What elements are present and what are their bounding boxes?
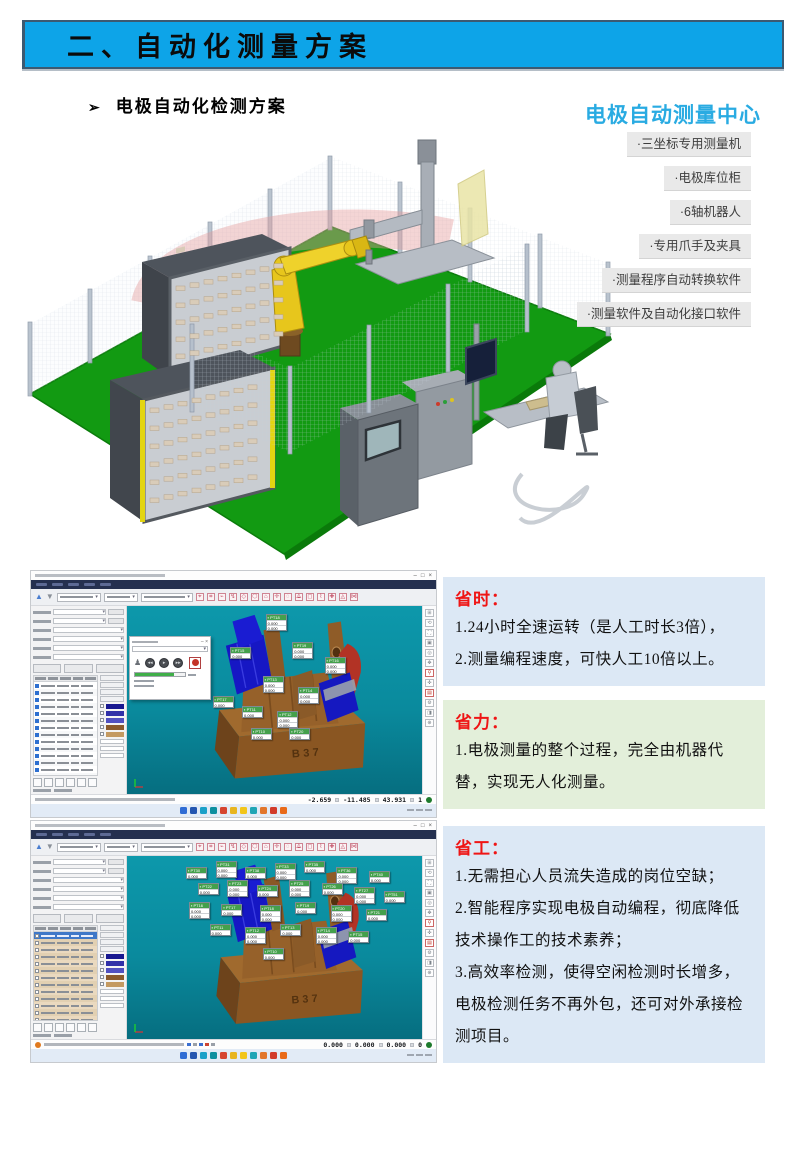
field-button[interactable] (108, 859, 124, 865)
measure-tool-icon[interactable]: ◌ (284, 593, 292, 601)
measurement-tag-value: 0.000 (214, 702, 233, 707)
field-label (33, 870, 51, 873)
table-row[interactable] (34, 939, 97, 946)
layer-checkbox[interactable] (100, 968, 104, 972)
panel-button[interactable] (96, 914, 124, 923)
table-row[interactable] (34, 953, 97, 960)
taskbar-app-icon[interactable] (260, 807, 267, 814)
side-button[interactable] (100, 932, 124, 938)
table-cell (57, 935, 69, 937)
row-marker-icon (35, 726, 39, 730)
spinner-icon[interactable] (375, 798, 379, 802)
measure-tool-icon[interactable]: ◬ (339, 843, 347, 851)
rail-tool-icon[interactable]: ⚲ (425, 919, 434, 927)
table-cell (71, 949, 79, 951)
table-row[interactable] (34, 738, 97, 745)
rail-tool-icon[interactable]: ✜ (425, 929, 434, 937)
spinner-icon[interactable] (347, 1043, 351, 1047)
taskbar-app-icon[interactable] (200, 807, 207, 814)
form-row (33, 608, 124, 616)
layer-checkbox[interactable] (100, 704, 104, 708)
field-dropdown[interactable] (53, 895, 124, 901)
measure-tool-icon[interactable]: ⌇ (317, 593, 325, 601)
spinner-icon[interactable] (379, 1043, 383, 1047)
row-checkbox[interactable] (35, 976, 39, 980)
dialog-dropdown[interactable] (132, 646, 208, 652)
measure-tool-icon[interactable]: ⌂ (262, 843, 270, 851)
menu-item[interactable] (100, 583, 111, 586)
table-row[interactable] (34, 974, 97, 981)
view-icon[interactable]: ▲ (35, 593, 43, 601)
measurement-tag-value: 0.000 (264, 954, 283, 959)
panel-toolbar-icon[interactable] (33, 778, 42, 787)
field-button[interactable] (108, 618, 124, 624)
field-dropdown[interactable] (53, 609, 106, 615)
row-checkbox[interactable] (35, 962, 39, 966)
table-cell (81, 956, 93, 958)
field-dropdown[interactable] (53, 618, 106, 624)
table-row[interactable] (34, 1016, 97, 1021)
menu-item[interactable] (84, 833, 95, 836)
measurement-tag-value: 0.000 (261, 916, 280, 921)
table-cell (57, 727, 69, 729)
measure-tool-icon[interactable]: ✛ (273, 843, 281, 851)
menu-bar (31, 580, 436, 589)
taskbar-app-icon[interactable] (210, 1052, 217, 1059)
measurement-tag-value: 0.000 (228, 891, 247, 896)
taskbar-app-icon[interactable] (240, 807, 247, 814)
side-input[interactable] (100, 746, 124, 751)
status-z: 0.000 (387, 1041, 407, 1049)
panel-button[interactable] (64, 914, 92, 923)
table-cell (71, 706, 79, 708)
measure-tool-icon[interactable]: ↯ (229, 843, 237, 851)
rail-tool-icon[interactable]: ✜ (425, 679, 434, 687)
taskbar-app-icon[interactable] (230, 1052, 237, 1059)
playback-button[interactable]: ▸▸ (173, 658, 183, 668)
panel-button[interactable] (96, 664, 124, 673)
panel-toolbar-icon[interactable] (33, 1023, 42, 1032)
layer-checkbox[interactable] (100, 975, 104, 979)
rail-tool-icon[interactable]: ⚲ (425, 669, 434, 677)
measurement-tag-value: 0.000 (290, 734, 309, 739)
spinner-icon[interactable] (410, 1043, 414, 1047)
field-dropdown[interactable] (53, 654, 124, 660)
status-y: -11.485 (343, 796, 370, 804)
rail-tool-icon[interactable]: ▤ (425, 939, 434, 947)
dialog-close-icon[interactable]: – × (201, 640, 208, 645)
panel-toolbar-icon[interactable] (44, 1023, 53, 1032)
taskbar-app-icon[interactable] (230, 807, 237, 814)
table-cell (41, 713, 55, 715)
measure-tool-icon[interactable]: ⌗ (207, 593, 215, 601)
layer-checkbox[interactable] (100, 711, 104, 715)
panel-toolbar-icon[interactable] (66, 778, 75, 787)
panel-toolbar-icon[interactable] (88, 1023, 97, 1032)
measurement-tag-value: 0.000 (349, 937, 368, 942)
table-row[interactable] (34, 759, 97, 766)
measurement-tag-value: 0.000 (367, 915, 386, 920)
measurement-tag-value: 0.000 (222, 910, 241, 915)
measurement-tag-value: 0.000 (281, 930, 300, 935)
measure-tool-icon[interactable]: ⌇ (317, 843, 325, 851)
menu-item[interactable] (100, 833, 111, 836)
measure-tool-icon[interactable]: ✚ (328, 593, 336, 601)
table-row[interactable] (34, 689, 97, 696)
panel-tab[interactable] (33, 1034, 51, 1037)
measure-tool-icon[interactable]: ⌖ (196, 843, 204, 851)
tray-item (407, 1054, 414, 1056)
toolbar-dropdown[interactable]: ▾ (57, 593, 101, 602)
table-cell (41, 685, 55, 687)
row-checkbox[interactable] (35, 934, 39, 938)
taskbar-app-icon[interactable] (250, 1052, 257, 1059)
row-checkbox[interactable] (35, 997, 39, 1001)
table-cell (71, 762, 79, 764)
row-checkbox[interactable] (35, 969, 39, 973)
measurement-tag: ▪ PT120.0000.000 (245, 927, 266, 944)
measure-tool-icon[interactable]: ⌗ (207, 843, 215, 851)
table-row[interactable] (34, 988, 97, 995)
side-button[interactable] (100, 946, 124, 952)
panel-side-column (100, 925, 124, 1021)
minimize-button[interactable]: – (414, 573, 417, 579)
measurement-tag: ▪ PT260.000 (322, 883, 343, 895)
rail-tool-icon[interactable]: ▣ (425, 639, 434, 647)
field-dropdown[interactable] (53, 636, 124, 642)
view-icon[interactable]: ▲ (35, 843, 43, 851)
measurement-tag: ▪ PT110.000 (242, 706, 263, 718)
rail-tool-icon[interactable]: ⟲ (425, 869, 434, 877)
taskbar-app-icon[interactable] (190, 807, 197, 814)
row-checkbox[interactable] (35, 1011, 39, 1015)
taskbar-app-icon[interactable] (190, 1052, 197, 1059)
measure-tool-icon[interactable]: ◇ (240, 593, 248, 601)
field-dropdown[interactable] (53, 645, 124, 651)
taskbar-app-icon[interactable] (180, 1052, 187, 1059)
toolbar-dropdown[interactable]: ▾ (141, 593, 193, 602)
rail-tool-icon[interactable]: ◨ (425, 959, 434, 967)
panel-toolbar-icon[interactable] (55, 778, 64, 787)
taskbar-app-icon[interactable] (270, 1052, 277, 1059)
table-cell (57, 762, 69, 764)
table-cell (41, 942, 55, 944)
side-button[interactable] (100, 689, 124, 695)
window-title-text (35, 824, 165, 827)
field-dropdown[interactable] (53, 859, 106, 865)
row-checkbox[interactable] (35, 990, 39, 994)
taskbar-app-icon[interactable] (220, 1052, 227, 1059)
measure-tool-icon[interactable]: ✚ (328, 843, 336, 851)
rail-tool-icon[interactable]: ▣ (425, 889, 434, 897)
taskbar-app-icon[interactable] (280, 807, 287, 814)
table-cell (71, 1019, 79, 1021)
table-row[interactable] (34, 752, 97, 759)
rail-tool-icon[interactable]: ⊞ (425, 859, 434, 867)
menu-item[interactable] (68, 583, 79, 586)
rail-tool-icon[interactable]: ▤ (425, 689, 434, 697)
layer-checkbox[interactable] (100, 982, 104, 986)
benefit-text: 1.电极测量的整个过程，完全由机器代替，实现无人化测量。 (455, 735, 753, 799)
field-button[interactable] (108, 868, 124, 874)
maximize-button[interactable]: □ (421, 823, 425, 829)
table-cell (57, 713, 69, 715)
layer-checkbox[interactable] (100, 732, 104, 736)
color-swatch (106, 982, 124, 987)
row-checkbox[interactable] (35, 941, 39, 945)
rail-tool-icon[interactable]: ◨ (425, 709, 434, 717)
measure-tool-icon[interactable]: ⌖ (196, 593, 204, 601)
measure-tool-icon[interactable]: ⬡ (251, 593, 259, 601)
taskbar-app-icon[interactable] (260, 1052, 267, 1059)
row-checkbox[interactable] (35, 955, 39, 959)
table-row[interactable] (34, 717, 97, 724)
measure-tool-icon[interactable]: ◻ (306, 593, 314, 601)
table-cell (81, 1019, 93, 1021)
panel-button[interactable] (64, 664, 92, 673)
menu-item[interactable] (36, 583, 47, 586)
measurement-tag: ▪ PT120.0000.000 (277, 711, 298, 728)
table-cell (71, 734, 79, 736)
side-button[interactable] (100, 682, 124, 688)
field-button[interactable] (108, 609, 124, 615)
field-dropdown[interactable] (53, 886, 124, 892)
right-toolbar: ⊞⟲⛶▣◎✥⚲✜▤⚙◨⊕ (422, 606, 436, 794)
measure-tool-icon[interactable]: ⌂ (262, 593, 270, 601)
measurement-tag-value: 0.000 (337, 878, 356, 883)
measure-tool-icon[interactable]: ↯ (229, 593, 237, 601)
maximize-button[interactable]: □ (421, 573, 425, 579)
side-input[interactable] (100, 989, 124, 994)
taskbar-app-icon[interactable] (180, 807, 187, 814)
panel-toolbar-icon[interactable] (66, 1023, 75, 1032)
measurement-tag: ▪ PT230.0000.000 (227, 880, 248, 897)
rail-tool-icon[interactable]: ⊞ (425, 609, 434, 617)
table-row[interactable] (34, 995, 97, 1002)
field-dropdown[interactable] (53, 877, 124, 883)
rail-tool-icon[interactable]: ✥ (425, 659, 434, 667)
button-row (33, 914, 124, 923)
status-x: -2.659 (308, 796, 331, 804)
rail-tool-icon[interactable]: ⊕ (425, 719, 434, 727)
measurement-tag-value: 0.000 (252, 734, 271, 739)
table-cell (57, 949, 69, 951)
spinner-icon[interactable] (410, 798, 414, 802)
row-marker-icon (35, 768, 39, 772)
table-cell (81, 713, 93, 715)
measure-tool-icon[interactable]: ⋈ (350, 593, 358, 601)
side-input[interactable] (100, 739, 124, 744)
rail-tool-icon[interactable]: ⚙ (425, 699, 434, 707)
rail-tool-icon[interactable]: ◎ (425, 649, 434, 657)
taskbar-app-icon[interactable] (220, 807, 227, 814)
measurement-tag: ▪ PT350.000 (304, 861, 325, 873)
rail-tool-icon[interactable]: ⊕ (425, 969, 434, 977)
menu-item[interactable] (52, 833, 63, 836)
table-row[interactable] (34, 1009, 97, 1016)
row-checkbox[interactable] (35, 1004, 39, 1008)
panel-toolbar-icon[interactable] (88, 778, 97, 787)
table-cell (71, 748, 79, 750)
table-row[interactable] (34, 932, 97, 939)
filter-icon[interactable]: ▼ (46, 593, 54, 601)
menu-item[interactable] (36, 833, 47, 836)
menu-item[interactable] (84, 583, 95, 586)
menu-item[interactable] (52, 583, 63, 586)
row-checkbox[interactable] (35, 1018, 39, 1022)
toolbar-dropdown[interactable]: ▾ (57, 843, 101, 852)
panel-tab[interactable] (54, 1034, 72, 1037)
tray-item (407, 809, 414, 811)
field-label (33, 861, 51, 864)
table-row[interactable] (34, 696, 97, 703)
taskbar-app-icon[interactable] (240, 1052, 247, 1059)
measurement-tag-value: 0.000 (246, 873, 265, 878)
side-input[interactable] (100, 996, 124, 1001)
table-cell (71, 713, 79, 715)
layer-row (100, 703, 124, 709)
table-header-cell (60, 927, 71, 930)
panel-button[interactable] (33, 664, 61, 673)
table-cell (41, 977, 55, 979)
form-row (33, 635, 124, 643)
table-cell (71, 1012, 79, 1014)
table-cell (57, 942, 69, 944)
measure-tool-icon[interactable]: ⌁ (218, 843, 226, 851)
panel-toolbar-icon[interactable] (44, 778, 53, 787)
table-row[interactable] (34, 967, 97, 974)
table-row[interactable] (34, 703, 97, 710)
table-cell (41, 699, 55, 701)
table-row[interactable] (34, 745, 97, 752)
side-input[interactable] (100, 1003, 124, 1008)
measure-tool-icon[interactable]: ◇ (240, 843, 248, 851)
windows-taskbar (31, 804, 436, 817)
field-dropdown[interactable] (53, 904, 124, 910)
spinner-icon[interactable] (335, 798, 339, 802)
table-row[interactable] (34, 946, 97, 953)
table-row[interactable] (34, 981, 97, 988)
panel-toolbar (33, 1023, 124, 1032)
panel-toolbar-icon[interactable] (55, 1023, 64, 1032)
playback-button[interactable]: ◂◂ (145, 658, 155, 668)
row-checkbox[interactable] (35, 948, 39, 952)
close-button[interactable]: × (428, 823, 432, 829)
panel-tab[interactable] (33, 789, 51, 792)
taskbar-app-icon[interactable] (200, 1052, 207, 1059)
panel-button[interactable] (33, 914, 61, 923)
layer-checkbox[interactable] (100, 961, 104, 965)
status-bar: -2.659-11.48543.9311 (31, 794, 436, 804)
side-input[interactable] (100, 753, 124, 758)
measure-tool-icon[interactable]: ◌ (284, 843, 292, 851)
layer-checkbox[interactable] (100, 954, 104, 958)
panel-toolbar-icon[interactable] (77, 778, 86, 787)
row-marker-icon (35, 761, 39, 765)
side-button[interactable] (100, 675, 124, 681)
measure-tool-icon[interactable]: ✛ (273, 593, 281, 601)
measure-tool-icon[interactable]: ⋈ (350, 843, 358, 851)
measurement-tag: ▪ PT160.0000.000 (325, 657, 346, 674)
rail-tool-icon[interactable]: ⟲ (425, 619, 434, 627)
menu-item[interactable] (68, 833, 79, 836)
table-row[interactable] (34, 724, 97, 731)
table-cell (71, 741, 79, 743)
row-checkbox[interactable] (35, 983, 39, 987)
measure-tool-icon[interactable]: ⬡ (251, 843, 259, 851)
toolbar-dropdown[interactable]: ▾ (104, 843, 138, 852)
rail-tool-icon[interactable]: ⚙ (425, 949, 434, 957)
status-path-text (44, 1043, 184, 1046)
rail-tool-icon[interactable]: ✥ (425, 909, 434, 917)
row-marker-icon (35, 719, 39, 723)
row-marker-icon (35, 740, 39, 744)
table-row[interactable] (34, 960, 97, 967)
form-row (33, 626, 124, 634)
side-button[interactable] (100, 696, 124, 702)
filter-icon[interactable]: ▼ (46, 843, 54, 851)
table-row[interactable] (34, 710, 97, 717)
measure-tool-icon[interactable]: ⌁ (218, 593, 226, 601)
rail-tool-icon[interactable]: ⛶ (425, 879, 434, 887)
status-count: 0 (418, 1041, 422, 1049)
playback-button[interactable]: ▸ (159, 658, 169, 668)
close-button[interactable]: × (428, 573, 432, 579)
taskbar-app-icon[interactable] (250, 807, 257, 814)
status-z: 43.931 (383, 796, 406, 804)
layer-checkbox[interactable] (100, 718, 104, 722)
field-dropdown[interactable] (53, 868, 106, 874)
field-dropdown[interactable] (53, 627, 124, 633)
toolbar: ▲▼▾▾▾⌖⌗⌁↯◇⬡⌂✛◌⟁◻⌇✚◬⋈ (31, 589, 436, 606)
side-button[interactable] (100, 925, 124, 931)
taskbar-app-icon[interactable] (270, 807, 277, 814)
toolbar-dropdown[interactable]: ▾ (141, 843, 193, 852)
layer-checkbox[interactable] (100, 725, 104, 729)
taskbar-app-icon[interactable] (280, 1052, 287, 1059)
table-cell (57, 1005, 69, 1007)
rail-tool-icon[interactable]: ⛶ (425, 629, 434, 637)
feature-table (33, 925, 98, 1021)
table-cell (41, 776, 55, 777)
measure-tool-icon[interactable]: ⟁ (295, 843, 303, 851)
record-button[interactable] (189, 657, 201, 669)
side-button[interactable] (100, 939, 124, 945)
field-label (33, 620, 51, 623)
measurement-tag-value: 0.000 (385, 897, 404, 902)
toolbar-dropdown[interactable]: ▾ (104, 593, 138, 602)
taskbar-app-icon[interactable] (210, 807, 217, 814)
table-row[interactable] (34, 731, 97, 738)
table-row[interactable] (34, 682, 97, 689)
measurement-tag: ▪ PT190.000 (295, 902, 316, 914)
table-row[interactable] (34, 766, 97, 773)
measure-tool-icon[interactable]: ◻ (306, 843, 314, 851)
measure-tool-icon[interactable]: ⟁ (295, 593, 303, 601)
rail-tool-icon[interactable]: ◎ (425, 899, 434, 907)
minimize-button[interactable]: – (414, 823, 417, 829)
tray-item (425, 809, 432, 811)
measurement-tag: ▪ PT200.000 (289, 728, 310, 740)
panel-toolbar-icon[interactable] (77, 1023, 86, 1032)
table-cell (41, 970, 55, 972)
table-row[interactable] (34, 1002, 97, 1009)
measure-tool-icon[interactable]: ◬ (339, 593, 347, 601)
measurement-tag: ▪ PT210.000 (366, 909, 387, 921)
table-cell (81, 1012, 93, 1014)
panel-tab[interactable] (54, 789, 72, 792)
table-row[interactable] (34, 773, 97, 776)
